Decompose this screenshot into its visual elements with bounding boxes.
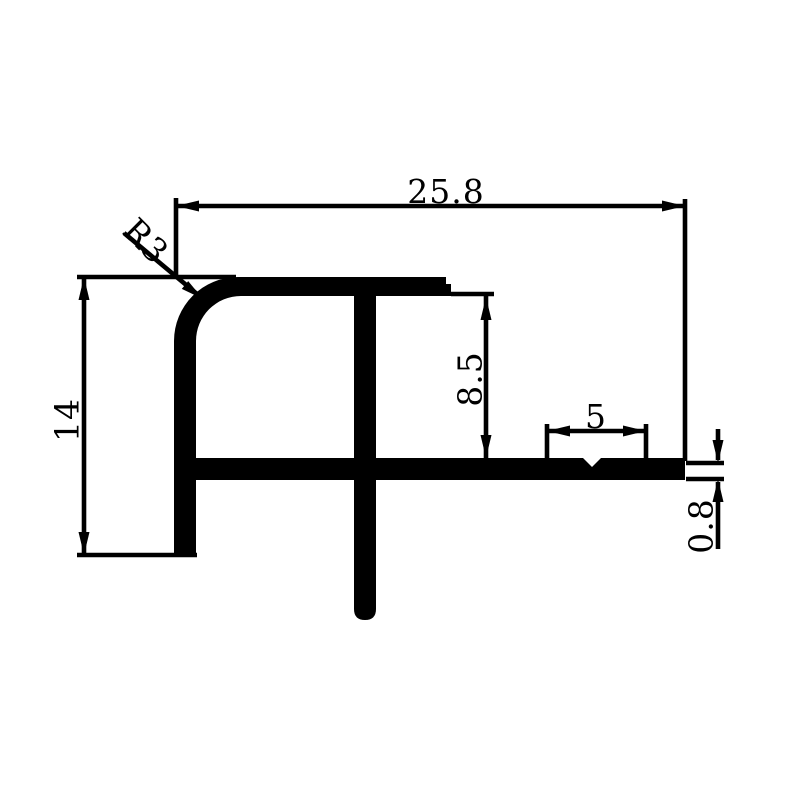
dim-label-overall-height: 14 — [48, 398, 87, 442]
arrowhead-down — [713, 440, 724, 463]
arrowhead-top — [481, 297, 492, 320]
dim-label-flange-tip-thickness: 0.8 — [682, 498, 721, 553]
dimension-corner-radius: R3 — [115, 210, 203, 299]
profile-bottom-flange — [190, 458, 685, 480]
profile-technical-drawing: 25.8 R3 14 8.5 — [0, 0, 800, 800]
arrowhead-left — [176, 201, 199, 212]
dimension-overall-height: 14 — [48, 277, 237, 555]
dim-label-inner-height: 8.5 — [451, 351, 490, 406]
arrowhead-bottom — [79, 532, 90, 555]
dimension-overall-width: 25.8 — [176, 172, 685, 461]
arrowhead-left — [547, 426, 570, 437]
drawing-canvas: 25.8 R3 14 8.5 — [0, 0, 800, 800]
dimension-inner-height: 8.5 — [451, 294, 495, 458]
arrowhead-bottom — [481, 435, 492, 458]
dim-label-overall-width: 25.8 — [407, 172, 484, 211]
dimension-flange-tip-thickness: 0.8 — [682, 429, 725, 554]
profile-shape — [174, 277, 685, 620]
arrowhead-top — [79, 277, 90, 300]
profile-wall-and-top-flange — [174, 277, 451, 555]
dim-label-notch-zone-width: 5 — [585, 397, 607, 436]
dimension-notch-zone-width: 5 — [547, 397, 646, 459]
arrowhead-right — [623, 426, 646, 437]
dim-label-corner-radius: R3 — [115, 210, 176, 271]
profile-center-stem — [354, 280, 376, 620]
arrowhead-right — [662, 201, 685, 212]
